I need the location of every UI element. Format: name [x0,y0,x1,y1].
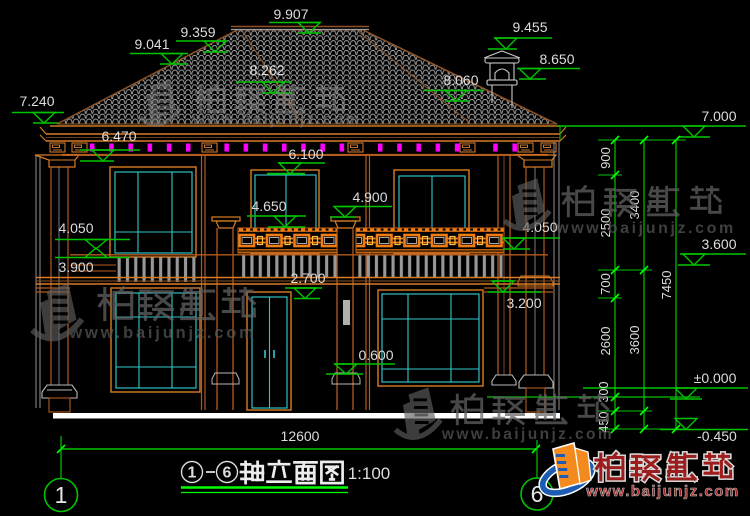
svg-text:7.000: 7.000 [701,108,736,124]
svg-text:8.650: 8.650 [539,51,574,67]
svg-text:1:100: 1:100 [348,464,391,483]
svg-text:8.262: 8.262 [249,62,284,78]
svg-text:9.041: 9.041 [134,36,169,52]
svg-text:www.baijunjz.com: www.baijunjz.com [192,111,362,128]
svg-text:12600: 12600 [281,428,320,444]
svg-text:www.baijunjz.com: www.baijunjz.com [441,426,614,443]
svg-text:-0.450: -0.450 [697,428,737,444]
svg-text:4.050: 4.050 [58,220,93,236]
svg-text:±0.000: ±0.000 [694,370,737,386]
svg-text:6.470: 6.470 [101,128,136,144]
svg-text:4.900: 4.900 [352,189,387,205]
svg-text:7.240: 7.240 [19,93,54,109]
svg-text:6: 6 [223,465,232,482]
svg-text:9.455: 9.455 [512,19,547,35]
svg-text:2600: 2600 [598,327,613,356]
svg-text:3600: 3600 [627,326,642,355]
svg-text:1: 1 [55,482,68,508]
svg-text:700: 700 [598,273,613,295]
svg-text:6.100: 6.100 [288,146,323,162]
svg-text:3.900: 3.900 [58,259,93,275]
svg-text:2.700: 2.700 [290,270,325,286]
svg-text:3.600: 3.600 [701,236,736,252]
svg-text:www.baijunjz.com: www.baijunjz.com [555,220,736,237]
svg-text:www.baijunjz.com: www.baijunjz.com [585,483,739,500]
svg-text:9.359: 9.359 [180,24,215,40]
svg-text:0.600: 0.600 [358,347,393,363]
svg-text:1: 1 [188,465,197,482]
svg-text:7450: 7450 [659,271,674,300]
svg-text:3.200: 3.200 [506,295,541,311]
svg-text:8.060: 8.060 [443,72,478,88]
svg-text:900: 900 [598,147,613,169]
svg-text:www.baijunjz.com: www.baijunjz.com [68,324,256,342]
svg-text:4.650: 4.650 [251,198,286,214]
svg-text:9.907: 9.907 [273,6,308,22]
